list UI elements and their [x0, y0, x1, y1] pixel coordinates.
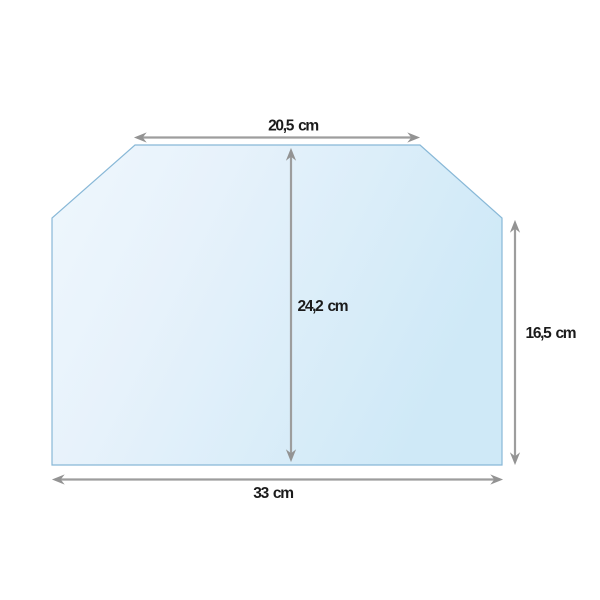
- svg-text:24,2 cm: 24,2 cm: [298, 298, 348, 315]
- svg-text:20,5 cm: 20,5 cm: [268, 118, 318, 135]
- svg-text:16,5 cm: 16,5 cm: [526, 325, 576, 342]
- svg-text:33 cm: 33 cm: [253, 485, 293, 502]
